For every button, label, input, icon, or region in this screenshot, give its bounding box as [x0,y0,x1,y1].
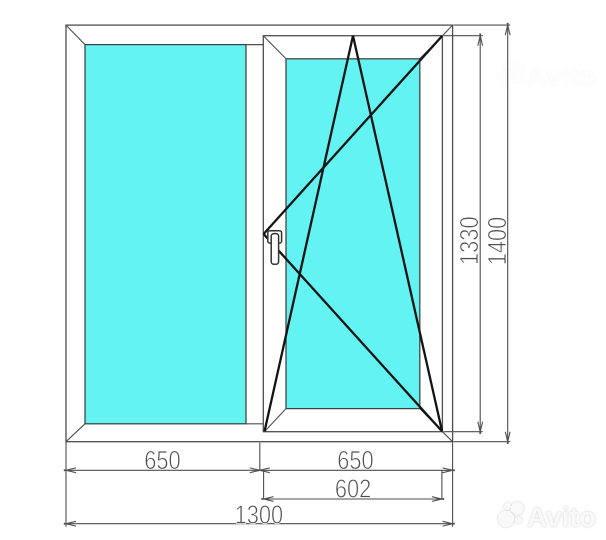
svg-text:1300: 1300 [235,501,284,530]
svg-text:Avito: Avito [527,502,596,533]
svg-text:650: 650 [144,446,180,475]
svg-text:Avito: Avito [527,61,596,92]
svg-text:1400: 1400 [483,217,512,266]
svg-text:602: 602 [335,475,371,504]
svg-text:1330: 1330 [455,216,484,265]
svg-text:650: 650 [337,446,373,475]
